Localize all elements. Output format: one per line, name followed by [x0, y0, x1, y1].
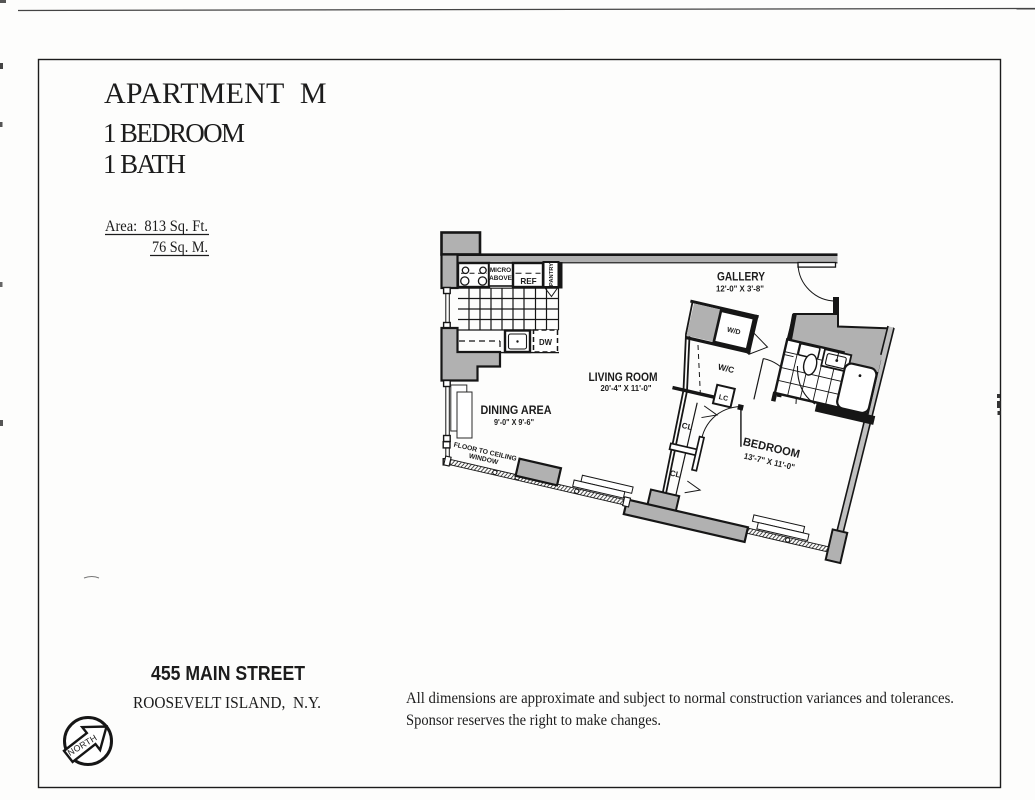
- svg-text:9'-0" X 9'-6": 9'-0" X 9'-6": [494, 417, 534, 427]
- svg-text:REF: REF: [520, 277, 536, 286]
- svg-text:ABOVE: ABOVE: [489, 275, 512, 282]
- svg-text:PANTRY: PANTRY: [549, 263, 555, 286]
- svg-text:Area: 813 Sq. Ft.: Area: 813 Sq. Ft.: [105, 218, 208, 235]
- svg-text:APARTMENT M: APARTMENT M: [104, 77, 327, 110]
- svg-text:ROOSEVELT ISLAND, N.Y.: ROOSEVELT ISLAND, N.Y.: [133, 693, 321, 712]
- svg-text:DINING AREA: DINING AREA: [481, 405, 552, 417]
- svg-text:DW: DW: [539, 338, 553, 347]
- svg-text:Sponsor reserves the right to: Sponsor reserves the right to make chang…: [406, 712, 661, 729]
- svg-text:20'-4" X 11'-0": 20'-4" X 11'-0": [601, 383, 652, 393]
- svg-text:GALLERY: GALLERY: [717, 272, 765, 284]
- svg-text:12'-0" X 3'-8": 12'-0" X 3'-8": [716, 284, 764, 294]
- svg-text:MICRO: MICRO: [490, 267, 511, 274]
- svg-text:1 BATH: 1 BATH: [103, 149, 186, 179]
- svg-text:1 BEDROOM: 1 BEDROOM: [103, 118, 245, 148]
- svg-text:All dimensions are approximate: All dimensions are approximate and subje…: [406, 690, 954, 707]
- svg-text:455 MAIN STREET: 455 MAIN STREET: [151, 663, 305, 685]
- svg-text:76 Sq. M.: 76 Sq. M.: [152, 239, 208, 256]
